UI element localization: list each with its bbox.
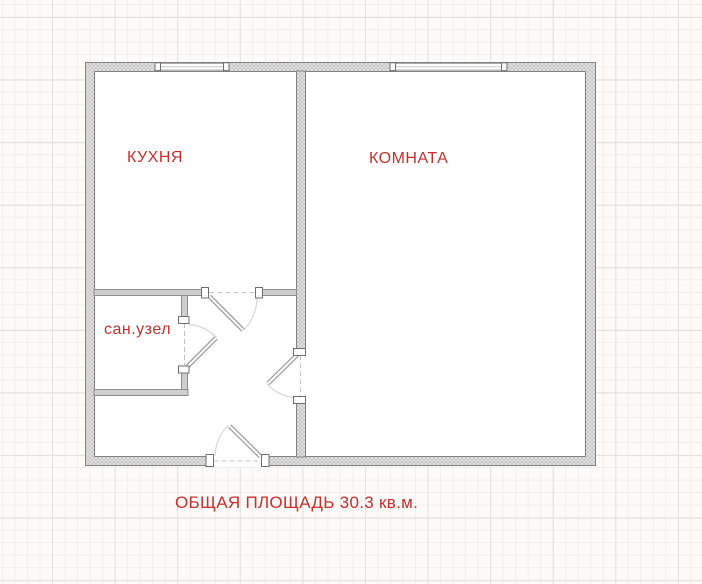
floorplan-canvas: КУХНЯ КОМНАТА сан.узел ОБЩАЯ ПЛОЩАДЬ 30.…	[0, 0, 702, 584]
kitchen-window-icon	[155, 63, 229, 71]
room-label-kitchen: КУХНЯ	[127, 149, 183, 167]
total-area-caption: ОБЩАЯ ПЛОЩАДЬ 30.3 кв.м.	[175, 493, 418, 513]
exterior-walls	[86, 63, 596, 466]
room-label-room: КОМНАТА	[369, 150, 448, 168]
room-window-icon	[390, 63, 507, 71]
room-label-bathroom: сан.узел	[104, 321, 171, 339]
